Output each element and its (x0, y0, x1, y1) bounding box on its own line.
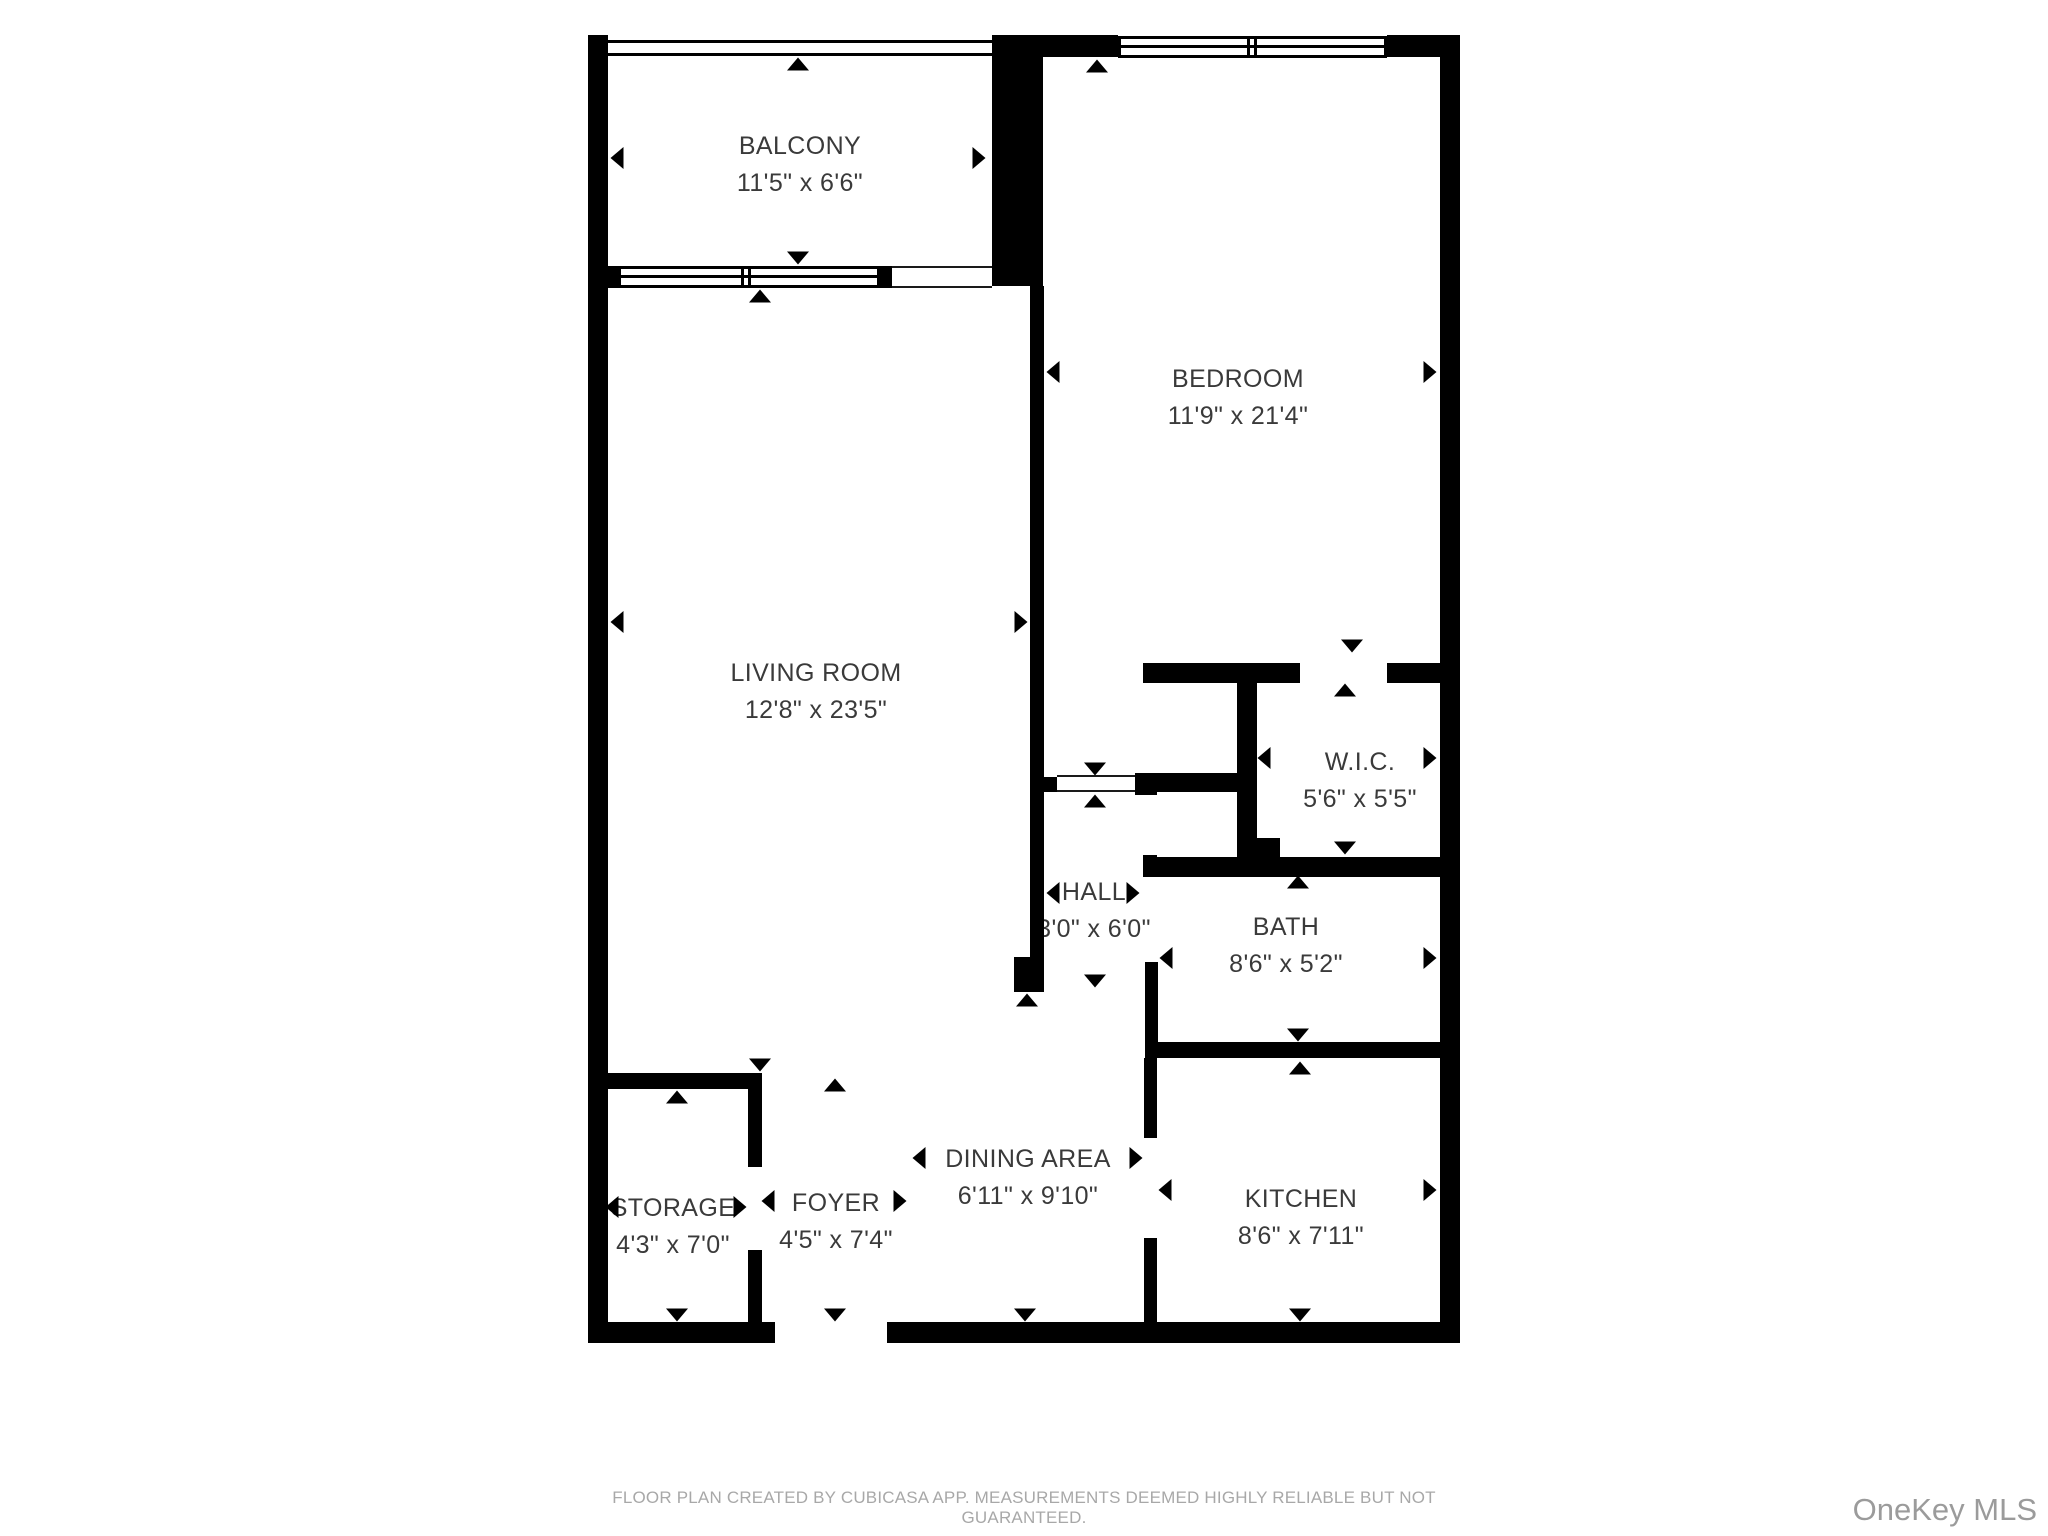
dimension-arrow (1334, 684, 1356, 697)
wall (880, 266, 892, 288)
wall (1237, 663, 1257, 870)
room-dimensions: 8'6" x 7'11" (1238, 1218, 1364, 1255)
room-label-living-room: LIVING ROOM12'8" x 23'5" (730, 655, 901, 729)
window-divider (1254, 37, 1257, 57)
dimension-arrow (1047, 361, 1060, 383)
wall (887, 1322, 1460, 1343)
dimension-arrow (787, 58, 809, 71)
dimension-arrow (1127, 882, 1140, 904)
dimension-arrow (749, 1059, 771, 1072)
dimension-arrow (913, 1147, 926, 1169)
dimension-arrow (1424, 361, 1437, 383)
dimension-arrow (1287, 1029, 1309, 1042)
dimension-arrow (824, 1309, 846, 1322)
room-dimensions: 6'11" x 9'10" (945, 1178, 1111, 1215)
room-name: BALCONY (737, 128, 863, 165)
wall (1043, 35, 1118, 57)
window (1118, 36, 1387, 58)
window-divider (748, 267, 751, 287)
room-name: KITCHEN (1238, 1181, 1364, 1218)
window-frame-line (1120, 45, 1385, 48)
dimension-arrow (1424, 1179, 1437, 1201)
dimension-arrow (1130, 1147, 1143, 1169)
dimension-arrow (824, 1079, 846, 1092)
room-name: STORAGE (611, 1190, 736, 1227)
watermark-onekey-mls: OneKey MLS (1853, 1492, 2037, 1528)
dimension-arrow (734, 1196, 747, 1218)
room-label-balcony: BALCONY11'5" x 6'6" (737, 128, 863, 202)
wall (1144, 1238, 1157, 1323)
dimension-arrow (1424, 947, 1437, 969)
dimension-arrow (611, 611, 624, 633)
dimension-arrow (973, 147, 986, 169)
room-dimensions: 3'0" x 6'0" (1037, 911, 1151, 948)
room-label-kitchen: KITCHEN8'6" x 7'11" (1238, 1181, 1364, 1255)
dimension-arrow (894, 1190, 907, 1212)
dimension-arrow (1159, 1179, 1172, 1201)
room-dimensions: 11'9" x 21'4" (1168, 398, 1308, 435)
wall (748, 1250, 762, 1323)
wall (1145, 962, 1158, 1042)
room-label-storage: STORAGE4'3" x 7'0" (611, 1190, 736, 1264)
room-label-foyer: FOYER4'5" x 7'4" (779, 1185, 893, 1259)
wall (992, 35, 1043, 286)
dimension-arrow (1341, 640, 1363, 653)
wall (588, 1322, 775, 1343)
dimension-arrow (1015, 611, 1028, 633)
wall (748, 1073, 762, 1167)
wall-opening (1057, 775, 1135, 792)
room-label-bedroom: BEDROOM11'9" x 21'4" (1168, 361, 1308, 435)
room-name: BEDROOM (1168, 361, 1308, 398)
dimension-arrow (1258, 747, 1271, 769)
room-dimensions: 11'5" x 6'6" (737, 165, 863, 202)
room-dimensions: 4'5" x 7'4" (779, 1222, 893, 1259)
dimension-arrow (1289, 1062, 1311, 1075)
dimension-arrow (1160, 947, 1173, 969)
dimension-arrow (762, 1190, 775, 1212)
dimension-arrow (1424, 747, 1437, 769)
dimension-arrow (1289, 1309, 1311, 1322)
wall (1387, 663, 1440, 683)
room-dimensions: 12'8" x 23'5" (730, 692, 901, 729)
dimension-arrow (611, 147, 624, 169)
dimension-arrow (1047, 882, 1060, 904)
dimension-arrow (666, 1309, 688, 1322)
room-name: BATH (1229, 909, 1343, 946)
disclaimer-text: FLOOR PLAN CREATED BY CUBICASA APP. MEAS… (588, 1488, 1460, 1528)
wall (588, 35, 608, 1343)
dimension-arrow (787, 252, 809, 265)
wall (607, 1073, 762, 1089)
wall (1387, 35, 1440, 57)
room-dimensions: 8'6" x 5'2" (1229, 946, 1343, 983)
wall (1145, 1042, 1460, 1058)
balcony-railing (608, 40, 992, 56)
dimension-arrow (606, 1196, 619, 1218)
dimension-arrow (1287, 876, 1309, 889)
dimension-arrow (1086, 60, 1108, 73)
room-dimensions: 5'6" x 5'5" (1303, 781, 1417, 818)
dimension-arrow (1084, 763, 1106, 776)
room-label-dining-area: DINING AREA6'11" x 9'10" (945, 1141, 1111, 1215)
room-dimensions: 4'3" x 7'0" (611, 1227, 736, 1264)
dimension-arrow (749, 290, 771, 303)
room-label-bath: BATH8'6" x 5'2" (1229, 909, 1343, 983)
window (618, 266, 880, 288)
dimension-arrow (666, 1091, 688, 1104)
room-name: W.I.C. (1303, 744, 1417, 781)
room-label-wic: W.I.C.5'6" x 5'5" (1303, 744, 1417, 818)
wall (588, 266, 618, 288)
dimension-arrow (1334, 842, 1356, 855)
floorplan-page: BALCONY11'5" x 6'6"BEDROOM11'9" x 21'4"L… (0, 0, 2048, 1536)
dimension-arrow (1084, 795, 1106, 808)
room-name: DINING AREA (945, 1141, 1111, 1178)
dimension-arrow (1016, 994, 1038, 1007)
wall (1143, 857, 1460, 877)
dimension-arrow (1084, 975, 1106, 988)
floor-plan: BALCONY11'5" x 6'6"BEDROOM11'9" x 21'4"L… (0, 0, 2048, 1536)
window-divider (1247, 37, 1250, 57)
window-divider (741, 267, 744, 287)
wall (1440, 35, 1460, 1343)
wall (1143, 663, 1300, 683)
room-name: FOYER (779, 1185, 893, 1222)
wall (1144, 1058, 1157, 1138)
wall-opening (892, 266, 992, 288)
dimension-arrow (1014, 1309, 1036, 1322)
room-name: LIVING ROOM (730, 655, 901, 692)
wall (1141, 773, 1237, 792)
wall (1014, 957, 1044, 992)
wall (1030, 286, 1044, 957)
wall (1043, 777, 1057, 792)
